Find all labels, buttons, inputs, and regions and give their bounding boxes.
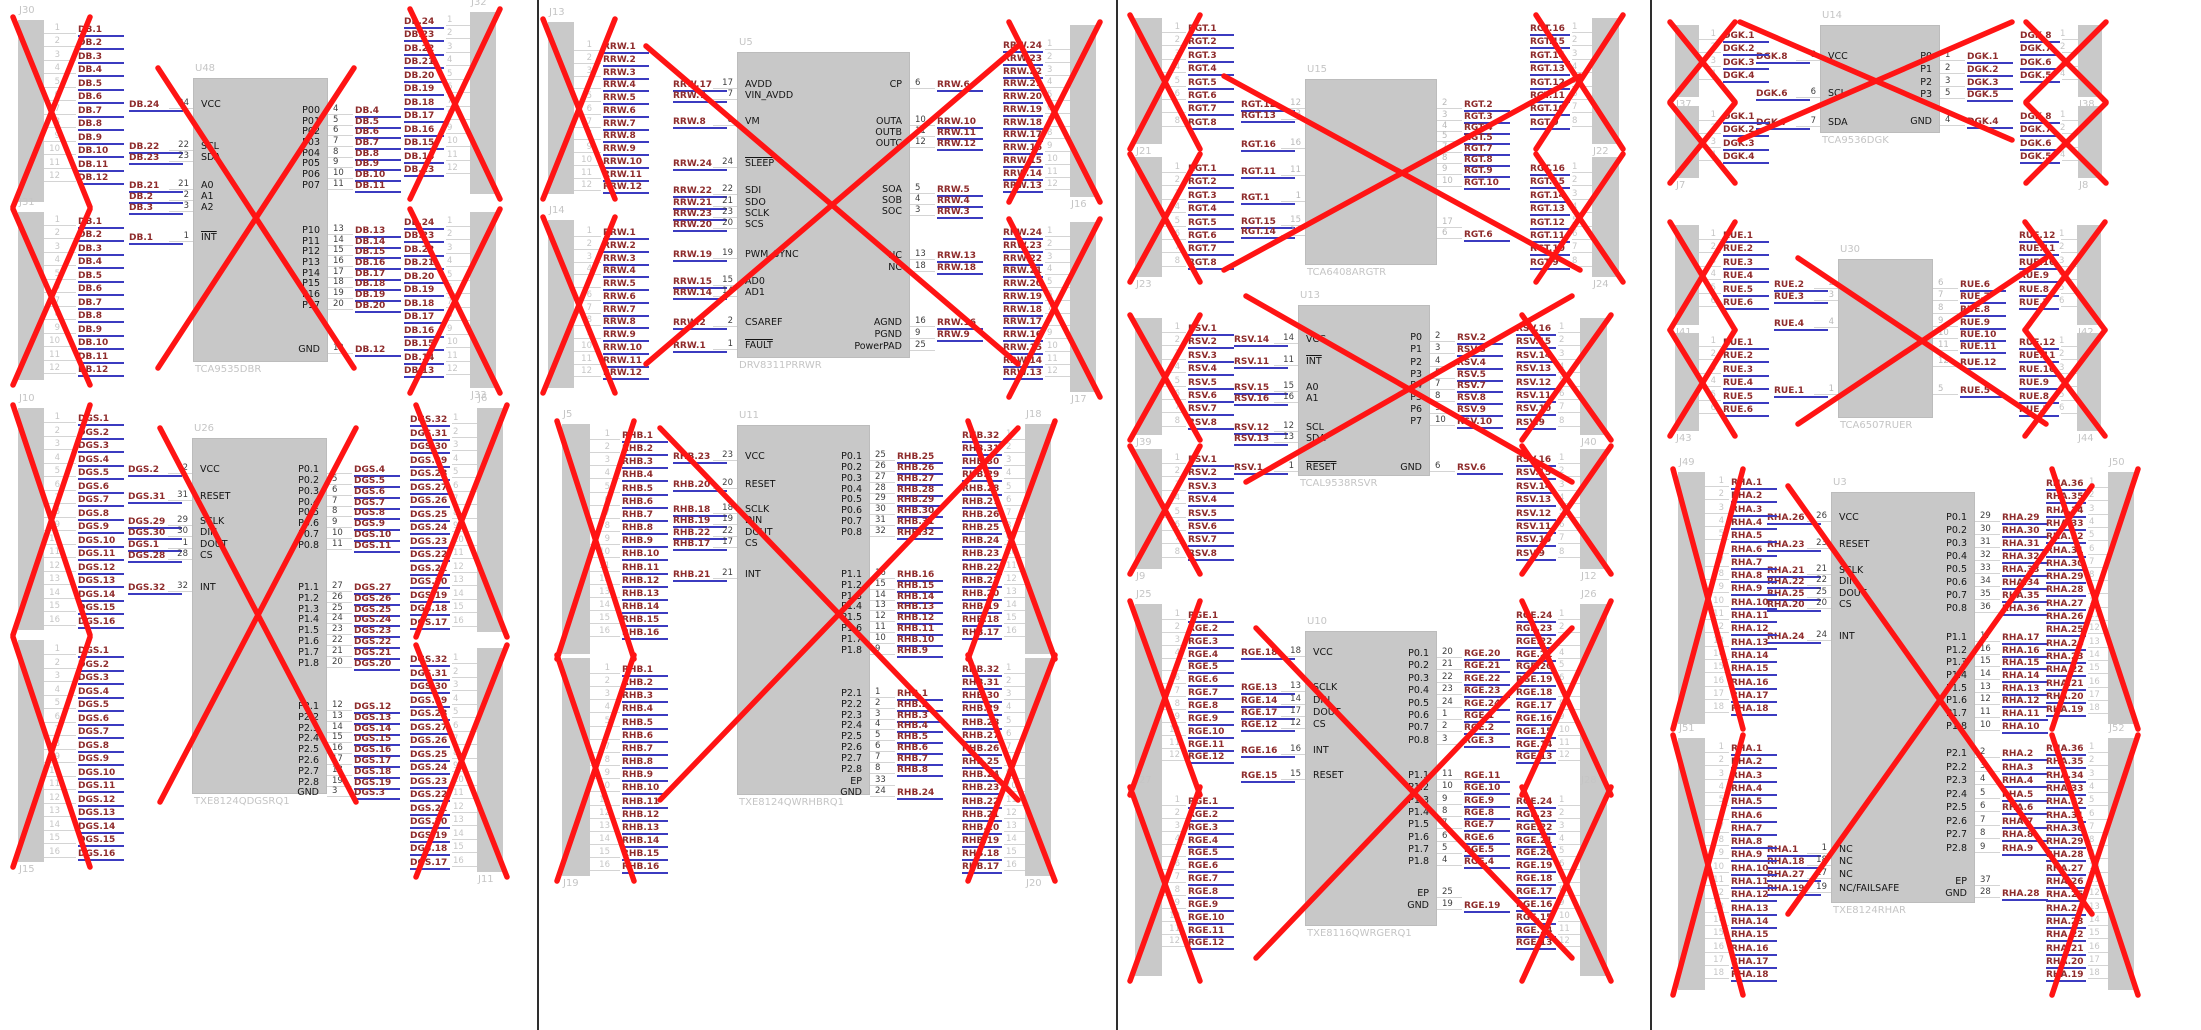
net-label[interactable]: RHA.34 [2046, 771, 2086, 783]
net-label[interactable]: RGE.1 [1464, 711, 1510, 723]
net-label[interactable]: DGS.4 [78, 687, 124, 699]
net-label[interactable]: RHA.20 [2046, 692, 2086, 704]
net-label[interactable]: RHB.5 [622, 484, 668, 496]
net-label[interactable]: RUE.9 [2019, 271, 2059, 283]
net-label[interactable]: DGS.11 [354, 541, 400, 553]
net-label[interactable]: RGE.3 [1464, 736, 1510, 748]
net-label[interactable]: DGS.24 [410, 763, 450, 775]
net-label[interactable]: RHB.15 [622, 615, 668, 627]
net-label[interactable]: RHA.5 [1731, 797, 1777, 809]
net-label[interactable]: RGT.2 [1464, 100, 1510, 112]
net-label[interactable]: RGE.24 [1464, 699, 1510, 711]
net-label[interactable]: RHA.36 [2046, 479, 2086, 491]
net-label[interactable]: RUE.1 [1723, 231, 1769, 243]
net-label[interactable]: DGK.1 [1967, 52, 2013, 64]
net-label[interactable]: DB.24 [404, 17, 444, 29]
net-label[interactable]: RSV.9 [1516, 549, 1556, 561]
net-label[interactable]: RHB.32 [962, 431, 1002, 443]
net-label[interactable]: RUE.9 [2019, 378, 2059, 390]
net-label[interactable]: RRW.13 [937, 251, 983, 263]
net-label[interactable]: RSV.14 [1516, 482, 1556, 494]
connector-J31[interactable] [18, 212, 44, 380]
net-label[interactable]: RHB.26 [962, 510, 1002, 522]
connector-J11[interactable] [477, 648, 503, 872]
net-label[interactable]: RSV.16 [1516, 324, 1556, 336]
connector-J30[interactable] [18, 20, 44, 202]
net-label[interactable]: RUE.2 [1723, 351, 1769, 363]
net-label[interactable]: RRW.17 [1003, 130, 1043, 142]
connector-J33[interactable] [470, 212, 496, 388]
net-label[interactable]: RHA.31 [2002, 539, 2048, 551]
net-label[interactable]: RRW.23 [1003, 241, 1043, 253]
net-label[interactable]: DGS.32 [128, 583, 182, 595]
net-label[interactable]: RSV.15 [1516, 468, 1556, 480]
net-label[interactable]: RHA.3 [1731, 771, 1777, 783]
net-label[interactable]: RHA.15 [1731, 930, 1777, 942]
net-label[interactable]: RGT.4 [1188, 64, 1234, 76]
net-label[interactable]: RRW.2 [673, 318, 727, 330]
net-label[interactable]: RSV.1 [1188, 455, 1234, 467]
net-label[interactable]: RSV.5 [1188, 378, 1234, 390]
net-label[interactable]: RGE.23 [1464, 686, 1510, 698]
net-label[interactable]: RRW.2 [603, 55, 649, 67]
net-label[interactable]: RHB.9 [622, 536, 668, 548]
net-label[interactable]: RHA.12 [1731, 624, 1777, 636]
net-label[interactable]: DB.13 [404, 165, 444, 177]
net-label[interactable]: DB.20 [404, 272, 444, 284]
net-label[interactable]: RRW.16 [937, 318, 983, 330]
connector-J13[interactable] [548, 22, 574, 194]
net-label[interactable]: RGE.2 [1188, 810, 1234, 822]
net-label[interactable]: RRW.9 [603, 144, 649, 156]
net-label[interactable]: DGS.30 [410, 682, 450, 694]
connector-J24[interactable] [1592, 157, 1619, 277]
net-label[interactable]: RSV.11 [1234, 357, 1288, 369]
connector-J5[interactable] [562, 424, 590, 654]
net-label[interactable]: RHA.21 [2046, 679, 2086, 691]
net-label[interactable]: RSV.10 [1457, 417, 1503, 429]
net-label[interactable]: RRW.10 [603, 157, 649, 169]
net-label[interactable]: RGT.12 [1530, 218, 1570, 230]
connector-J22[interactable] [1592, 18, 1619, 144]
net-label[interactable]: RHB.24 [962, 770, 1002, 782]
net-label[interactable]: RRW.21 [1003, 79, 1043, 91]
net-label[interactable]: DGS.15 [78, 603, 124, 615]
net-label[interactable]: DGS.24 [410, 523, 450, 535]
net-label[interactable]: RHA.32 [2046, 532, 2086, 544]
net-label[interactable]: RRW.12 [603, 182, 649, 194]
net-label[interactable]: RHA.33 [2046, 784, 2086, 796]
net-label[interactable]: RSV.6 [1188, 522, 1234, 534]
net-label[interactable]: RGE.13 [1516, 938, 1556, 950]
net-label[interactable]: RGE.8 [1188, 701, 1234, 713]
net-label[interactable]: DGS.10 [78, 768, 124, 780]
net-label[interactable]: DGS.26 [410, 736, 450, 748]
net-label[interactable]: RHB.19 [962, 602, 1002, 614]
net-label[interactable]: RGT.16 [1530, 24, 1570, 36]
net-label[interactable]: RUE.8 [2019, 392, 2059, 404]
net-label[interactable]: DB.2 [78, 230, 124, 242]
net-label[interactable]: DGS.16 [78, 617, 124, 629]
net-label[interactable]: RRW.14 [1003, 356, 1043, 368]
net-label[interactable]: RSV.13 [1516, 364, 1556, 376]
net-label[interactable]: DGS.13 [78, 808, 124, 820]
net-label[interactable]: DGS.23 [410, 777, 450, 789]
net-label[interactable]: RGT.1 [1188, 164, 1234, 176]
connector-J17[interactable] [1070, 222, 1096, 392]
net-label[interactable]: RGE.23 [1516, 810, 1556, 822]
net-label[interactable]: RSV.10 [1516, 535, 1556, 547]
net-label[interactable]: RGT.10 [1530, 244, 1570, 256]
net-label[interactable]: RGE.16 [1516, 900, 1556, 912]
net-label[interactable]: RGT.9 [1530, 258, 1570, 270]
net-label[interactable]: RHB.26 [962, 744, 1002, 756]
net-label[interactable]: RGT.16 [1530, 164, 1570, 176]
net-label[interactable]: RHA.21 [2046, 944, 2086, 956]
net-label[interactable]: DB.3 [129, 203, 183, 215]
net-label[interactable]: RGE.8 [1464, 808, 1510, 820]
connector-J26[interactable] [1580, 604, 1607, 790]
net-label[interactable]: RHB.17 [673, 539, 727, 551]
net-label[interactable]: RHA.30 [2046, 824, 2086, 836]
net-label[interactable]: RHB.4 [622, 470, 668, 482]
net-label[interactable]: RGE.19 [1464, 901, 1510, 913]
net-label[interactable]: DGS.6 [78, 714, 124, 726]
net-label[interactable]: RRW.18 [937, 263, 983, 275]
net-label[interactable]: RRW.19 [673, 250, 727, 262]
net-label[interactable]: RHB.17 [962, 628, 1002, 640]
net-label[interactable]: RGT.12 [1530, 78, 1570, 90]
net-label[interactable]: RRW.8 [603, 131, 649, 143]
net-label[interactable]: RGE.9 [1464, 796, 1510, 808]
connector-J7[interactable] [1675, 106, 1699, 178]
net-label[interactable]: RGE.20 [1516, 848, 1556, 860]
connector-J27[interactable] [1135, 790, 1162, 976]
net-label[interactable]: RRW.24 [1003, 41, 1043, 53]
net-label[interactable]: RSV.8 [1457, 393, 1503, 405]
net-label[interactable]: RHA.16 [2002, 646, 2048, 658]
net-label[interactable]: RHB.10 [622, 783, 668, 795]
net-label[interactable]: RGE.18 [1241, 648, 1295, 660]
net-label[interactable]: DGS.25 [410, 510, 450, 522]
net-label[interactable]: DB.22 [404, 44, 444, 56]
net-label[interactable]: RHB.8 [622, 523, 668, 535]
net-label[interactable]: RRW.17 [1003, 317, 1043, 329]
net-label[interactable]: DB.21 [404, 57, 444, 69]
net-label[interactable]: RRW.5 [603, 93, 649, 105]
connector-J18[interactable] [1025, 424, 1051, 654]
net-label[interactable]: RHA.10 [1731, 864, 1777, 876]
net-label[interactable]: RRW.22 [1003, 254, 1043, 266]
connector-J21[interactable] [1135, 18, 1162, 144]
net-label[interactable]: RHB.31 [962, 444, 1002, 456]
net-label[interactable]: RSV.13 [1234, 434, 1288, 446]
net-label[interactable]: DGS.1 [78, 414, 124, 426]
net-label[interactable]: RGE.3 [1188, 637, 1234, 649]
net-label[interactable]: RGT.11 [1530, 91, 1570, 103]
net-label[interactable]: RHA.24 [2046, 904, 2086, 916]
net-label[interactable]: RGE.17 [1516, 701, 1556, 713]
net-label[interactable]: RGE.21 [1464, 661, 1510, 673]
net-label[interactable]: RGE.6 [1188, 861, 1234, 873]
net-label[interactable]: RSV.16 [1234, 394, 1288, 406]
net-label[interactable]: RHA.9 [1731, 584, 1777, 596]
net-label[interactable]: RHB.3 [622, 457, 668, 469]
connector-J20[interactable] [1025, 658, 1051, 876]
net-label[interactable]: RHA.32 [2002, 552, 2048, 564]
net-label[interactable]: RRW.6 [937, 80, 983, 92]
net-label[interactable]: DGK.5 [1967, 90, 2013, 102]
connector-J12[interactable] [1580, 449, 1607, 569]
net-label[interactable]: RRW.14 [1003, 169, 1043, 181]
net-label[interactable]: RGE.4 [1188, 650, 1234, 662]
net-label[interactable]: RGE.14 [1516, 740, 1556, 752]
net-label[interactable]: RUE.1 [1774, 386, 1828, 398]
net-label[interactable]: DGK.3 [1723, 139, 1769, 151]
net-label[interactable]: RGT.14 [1530, 191, 1570, 203]
net-label[interactable]: RRW.22 [1003, 67, 1043, 79]
net-label[interactable]: RHA.11 [2002, 709, 2048, 721]
net-label[interactable]: RUE.6 [1960, 280, 2006, 292]
net-label[interactable]: RUE.10 [2019, 258, 2059, 270]
net-label[interactable]: RRW.13 [1003, 368, 1043, 380]
net-label[interactable]: DGS.12 [78, 795, 124, 807]
connector-J49[interactable] [1678, 472, 1705, 724]
net-label[interactable]: RGE.12 [1188, 752, 1234, 764]
net-label[interactable]: RHA.28 [2046, 850, 2086, 862]
net-label[interactable]: RGT.3 [1188, 191, 1234, 203]
net-label[interactable]: DB.6 [78, 92, 124, 104]
net-label[interactable]: RGE.22 [1464, 674, 1510, 686]
net-label[interactable]: RHA.8 [1731, 571, 1777, 583]
net-label[interactable]: RGE.7 [1188, 688, 1234, 700]
net-label[interactable]: RHA.11 [1731, 877, 1777, 889]
net-label[interactable]: RSV.8 [1188, 418, 1234, 430]
net-label[interactable]: DGK.8 [2020, 112, 2060, 124]
net-label[interactable]: DB.5 [78, 79, 124, 91]
net-label[interactable]: DGK.8 [2020, 31, 2060, 43]
net-label[interactable]: DB.17 [404, 312, 444, 324]
net-label[interactable]: DB.3 [78, 52, 124, 64]
net-label[interactable]: DGS.31 [410, 669, 450, 681]
net-label[interactable]: DGS.11 [78, 549, 124, 561]
net-label[interactable]: RHB.9 [622, 770, 668, 782]
net-label[interactable]: RGE.4 [1464, 857, 1510, 869]
net-label[interactable]: RHA.26 [2046, 612, 2086, 624]
net-label[interactable]: RSV.16 [1516, 455, 1556, 467]
net-label[interactable]: DB.15 [404, 339, 444, 351]
net-label[interactable]: RGT.14 [1530, 51, 1570, 63]
net-label[interactable]: RRW.13 [1003, 181, 1043, 193]
net-label[interactable]: RHA.18 [1731, 970, 1777, 982]
net-label[interactable]: RGT.6 [1188, 91, 1234, 103]
net-label[interactable]: RUE.4 [1723, 271, 1769, 283]
net-label[interactable]: DGS.7 [78, 495, 124, 507]
net-label[interactable]: DGS.18 [410, 604, 450, 616]
net-label[interactable]: RHB.24 [897, 788, 943, 800]
net-label[interactable]: RHA.9 [1731, 850, 1777, 862]
connector-J10[interactable] [18, 408, 44, 630]
net-label[interactable]: RHA.19 [2046, 970, 2086, 982]
net-label[interactable]: RHB.1 [622, 665, 668, 677]
net-label[interactable]: RHB.27 [962, 497, 1002, 509]
net-label[interactable]: DGS.22 [410, 790, 450, 802]
net-label[interactable]: RUE.8 [2019, 285, 2059, 297]
net-label[interactable]: RHB.11 [622, 797, 668, 809]
net-label[interactable]: RRW.4 [603, 80, 649, 92]
net-label[interactable]: DGS.22 [410, 550, 450, 562]
net-label[interactable]: DB.9 [78, 325, 124, 337]
net-label[interactable]: RHA.25 [2046, 890, 2086, 902]
net-label[interactable]: DB.8 [78, 119, 124, 131]
net-label[interactable]: RHA.14 [1731, 651, 1777, 663]
net-label[interactable]: DGS.20 [410, 817, 450, 829]
net-label[interactable]: RRW.9 [937, 330, 983, 342]
net-label[interactable]: DB.15 [404, 138, 444, 150]
net-label[interactable]: RGE.13 [1516, 752, 1556, 764]
net-label[interactable]: DB.12 [355, 345, 401, 357]
net-label[interactable]: DGS.9 [78, 522, 124, 534]
net-label[interactable]: RHA.13 [1731, 904, 1777, 916]
net-label[interactable]: RHA.5 [1731, 531, 1777, 543]
net-label[interactable]: RGT.1 [1241, 193, 1295, 205]
net-label[interactable]: RGE.15 [1516, 913, 1556, 925]
net-label[interactable]: RHB.14 [622, 836, 668, 848]
net-label[interactable]: RGE.24 [1516, 611, 1556, 623]
net-label[interactable]: RHB.27 [962, 731, 1002, 743]
net-label[interactable]: RSV.6 [1457, 463, 1503, 475]
net-label[interactable]: RHA.12 [1731, 890, 1777, 902]
net-label[interactable]: DGK.2 [1723, 44, 1769, 56]
ic-U15[interactable] [1305, 79, 1437, 265]
net-label[interactable]: DGS.20 [354, 659, 400, 671]
net-label[interactable]: RHB.18 [962, 849, 1002, 861]
net-label[interactable]: DGS.15 [78, 835, 124, 847]
net-label[interactable]: DGS.12 [78, 563, 124, 575]
connector-J6[interactable] [477, 408, 503, 632]
net-label[interactable]: DGK.6 [1756, 89, 1810, 101]
net-label[interactable]: RHB.19 [962, 836, 1002, 848]
net-label[interactable]: RRW.12 [603, 368, 649, 380]
net-label[interactable]: DGK.6 [2020, 58, 2060, 70]
net-label[interactable]: DGS.1 [78, 646, 124, 658]
net-label[interactable]: RSV.12 [1516, 378, 1556, 390]
net-label[interactable]: RRW.21 [1003, 266, 1043, 278]
net-label[interactable]: RSV.9 [1457, 405, 1503, 417]
net-label[interactable]: RHA.29 [2046, 837, 2086, 849]
net-label[interactable]: RGT.1 [1188, 24, 1234, 36]
net-label[interactable]: RRW.23 [1003, 54, 1043, 66]
net-label[interactable]: RRW.8 [673, 117, 727, 129]
net-label[interactable]: RGT.11 [1241, 167, 1295, 179]
net-label[interactable]: RRW.16 [1003, 143, 1043, 155]
net-label[interactable]: RSV.15 [1516, 337, 1556, 349]
net-label[interactable]: RRW.3 [603, 68, 649, 80]
net-label[interactable]: RSV.4 [1188, 364, 1234, 376]
net-label[interactable]: RHA.32 [2046, 797, 2086, 809]
net-label[interactable]: RHB.7 [622, 510, 668, 522]
net-label[interactable]: DB.7 [78, 106, 124, 118]
net-label[interactable]: RSV.5 [1188, 509, 1234, 521]
net-label[interactable]: DB.11 [78, 352, 124, 364]
net-label[interactable]: RGE.19 [1516, 861, 1556, 873]
net-label[interactable]: DGS.3 [78, 441, 124, 453]
connector-J28[interactable] [1580, 790, 1607, 976]
net-label[interactable]: RUE.6 [1723, 298, 1769, 310]
net-label[interactable]: RHA.15 [2002, 658, 2048, 670]
net-label[interactable]: DGS.5 [78, 700, 124, 712]
net-label[interactable]: RHA.33 [2002, 565, 2048, 577]
net-label[interactable]: DB.21 [404, 258, 444, 270]
connector-J37[interactable] [1675, 25, 1699, 97]
net-label[interactable]: RSV.3 [1188, 482, 1234, 494]
net-label[interactable]: RRW.15 [1003, 343, 1043, 355]
net-label[interactable]: DGS.27 [410, 723, 450, 735]
net-label[interactable]: DB.16 [404, 125, 444, 137]
net-label[interactable]: RSV.12 [1516, 509, 1556, 521]
net-label[interactable]: RSV.7 [1188, 535, 1234, 547]
net-label[interactable]: RRW.18 [1003, 305, 1043, 317]
net-label[interactable]: DB.3 [78, 244, 124, 256]
net-label[interactable]: RHB.22 [962, 797, 1002, 809]
net-label[interactable]: RHB.23 [962, 549, 1002, 561]
net-label[interactable]: RRW.11 [603, 356, 649, 368]
net-label[interactable]: RHA.5 [2002, 790, 2048, 802]
net-label[interactable]: DGS.18 [410, 844, 450, 856]
net-label[interactable]: RHA.33 [2046, 519, 2086, 531]
net-label[interactable]: RRW.7 [603, 119, 649, 131]
net-label[interactable]: DGK.3 [1723, 58, 1769, 70]
net-label[interactable]: RHB.23 [962, 783, 1002, 795]
net-label[interactable]: DB.4 [78, 257, 124, 269]
connector-J50[interactable] [2108, 472, 2134, 724]
net-label[interactable]: DB.10 [78, 338, 124, 350]
net-label[interactable]: RSV.14 [1234, 335, 1288, 347]
net-label[interactable]: DGK.7 [2020, 125, 2060, 137]
net-label[interactable]: DGS.32 [410, 415, 450, 427]
net-label[interactable]: DGS.6 [78, 482, 124, 494]
net-label[interactable]: RHA.14 [2002, 671, 2048, 683]
net-label[interactable]: RUE.7 [1960, 292, 2006, 304]
net-label[interactable]: RGE.5 [1188, 848, 1234, 860]
net-label[interactable]: RHA.36 [2046, 744, 2086, 756]
net-label[interactable]: RGE.15 [1516, 727, 1556, 739]
connector-J38[interactable] [2078, 25, 2102, 97]
net-label[interactable]: DB.19 [404, 285, 444, 297]
net-label[interactable]: RHB.1 [622, 431, 668, 443]
net-label[interactable]: DGK.6 [2020, 139, 2060, 151]
net-label[interactable]: RRW.6 [603, 292, 649, 304]
net-label[interactable]: RGT.13 [1241, 111, 1295, 123]
net-label[interactable]: RHB.2 [622, 678, 668, 690]
net-label[interactable]: DB.22 [404, 245, 444, 257]
net-label[interactable]: DGS.30 [410, 442, 450, 454]
net-label[interactable]: RHA.14 [1731, 917, 1777, 929]
net-label[interactable]: DGS.31 [128, 492, 182, 504]
net-label[interactable]: DB.11 [355, 181, 401, 193]
net-label[interactable]: RSV.10 [1516, 404, 1556, 416]
net-label[interactable]: RHB.13 [622, 823, 668, 835]
net-label[interactable]: DGS.32 [410, 655, 450, 667]
net-label[interactable]: RUE.1 [1723, 338, 1769, 350]
net-label[interactable]: RGE.6 [1188, 675, 1234, 687]
net-label[interactable]: RGE.8 [1188, 887, 1234, 899]
net-label[interactable]: RSV.4 [1457, 358, 1503, 370]
net-label[interactable]: DGS.3 [78, 673, 124, 685]
net-label[interactable]: RRW.19 [1003, 105, 1043, 117]
net-label[interactable]: RHA.22 [2046, 930, 2086, 942]
net-label[interactable]: RHB.13 [622, 589, 668, 601]
